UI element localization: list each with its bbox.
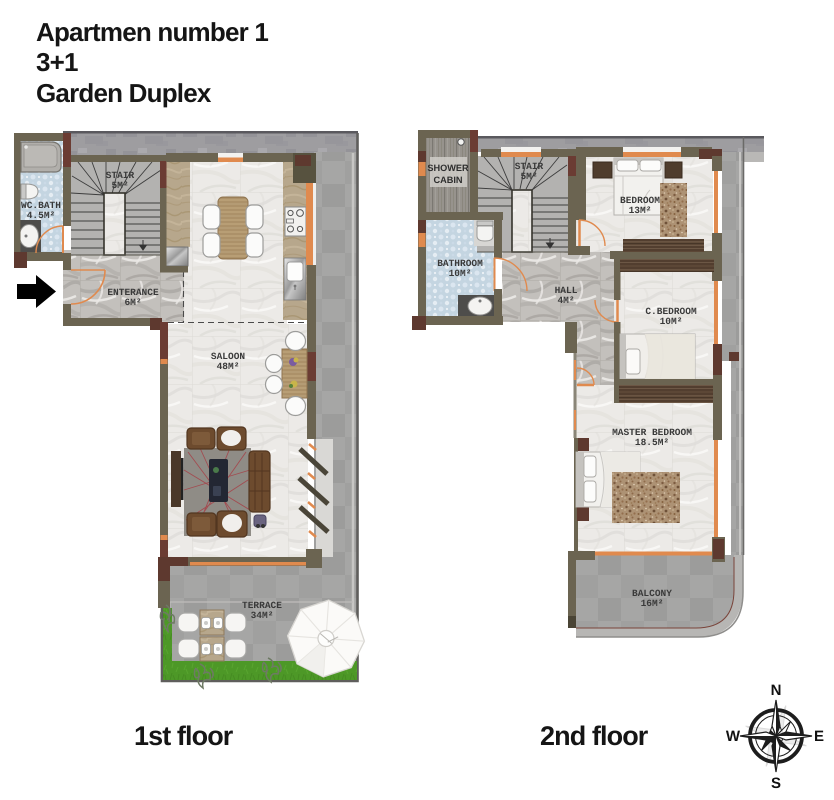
svg-text:13M²: 13M² bbox=[629, 205, 652, 216]
svg-text:16M²: 16M² bbox=[641, 598, 664, 609]
svg-text:6M²: 6M² bbox=[124, 297, 141, 308]
svg-text:W: W bbox=[726, 728, 741, 745]
svg-text:5M²: 5M² bbox=[520, 171, 537, 182]
svg-text:CABIN: CABIN bbox=[433, 175, 462, 185]
svg-text:SHOWER: SHOWER bbox=[427, 163, 469, 173]
svg-text:18.5M²: 18.5M² bbox=[635, 437, 669, 448]
svg-text:N: N bbox=[771, 682, 782, 699]
svg-text:4M²: 4M² bbox=[557, 295, 574, 306]
svg-text:4.5M²: 4.5M² bbox=[27, 210, 56, 221]
svg-text:S: S bbox=[771, 775, 781, 792]
svg-text:48M²: 48M² bbox=[217, 361, 240, 372]
svg-text:10M²: 10M² bbox=[660, 316, 683, 327]
svg-text:5M²: 5M² bbox=[111, 180, 128, 191]
svg-text:E: E bbox=[814, 728, 824, 745]
svg-text:10M²: 10M² bbox=[449, 268, 472, 279]
svg-text:34M²: 34M² bbox=[251, 610, 274, 621]
